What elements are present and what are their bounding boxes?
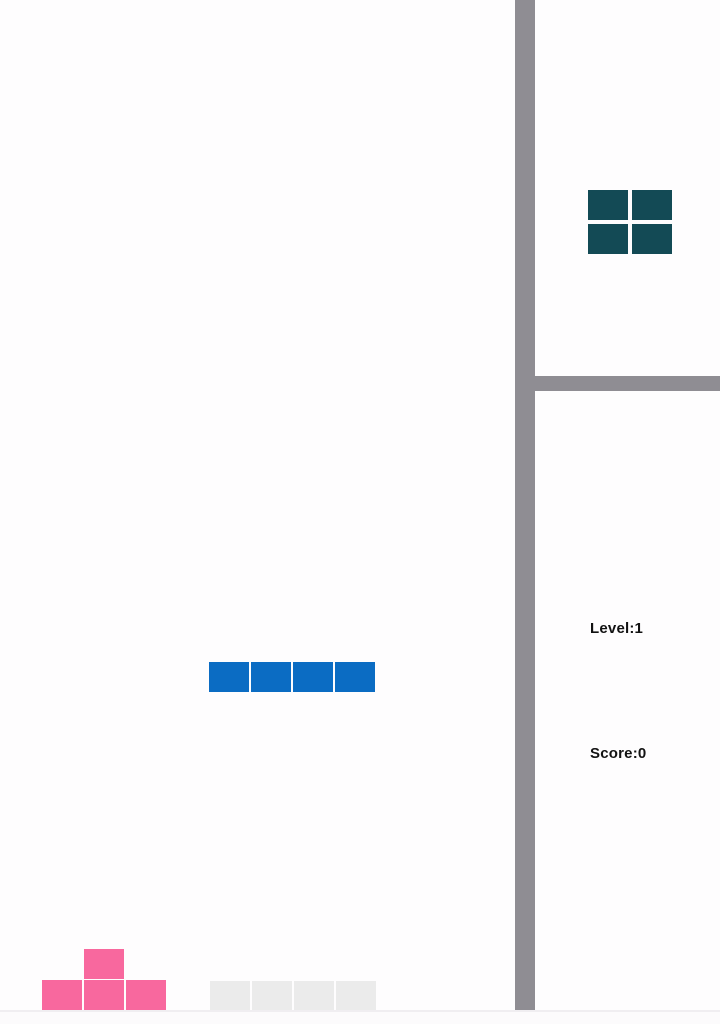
sidebar-section-divider xyxy=(535,376,720,391)
game-board[interactable] xyxy=(0,0,515,1010)
score-text: Score:0 xyxy=(590,745,646,762)
board-sidebar-divider xyxy=(515,0,535,1010)
stats-panel: Level:1 Score:0 xyxy=(535,391,720,1010)
next-piece-panel xyxy=(535,0,720,376)
tetris-app: Level:1 Score:0 xyxy=(0,0,720,1010)
level-text: Level:1 xyxy=(590,620,643,637)
page-background-strip xyxy=(0,1010,720,1024)
